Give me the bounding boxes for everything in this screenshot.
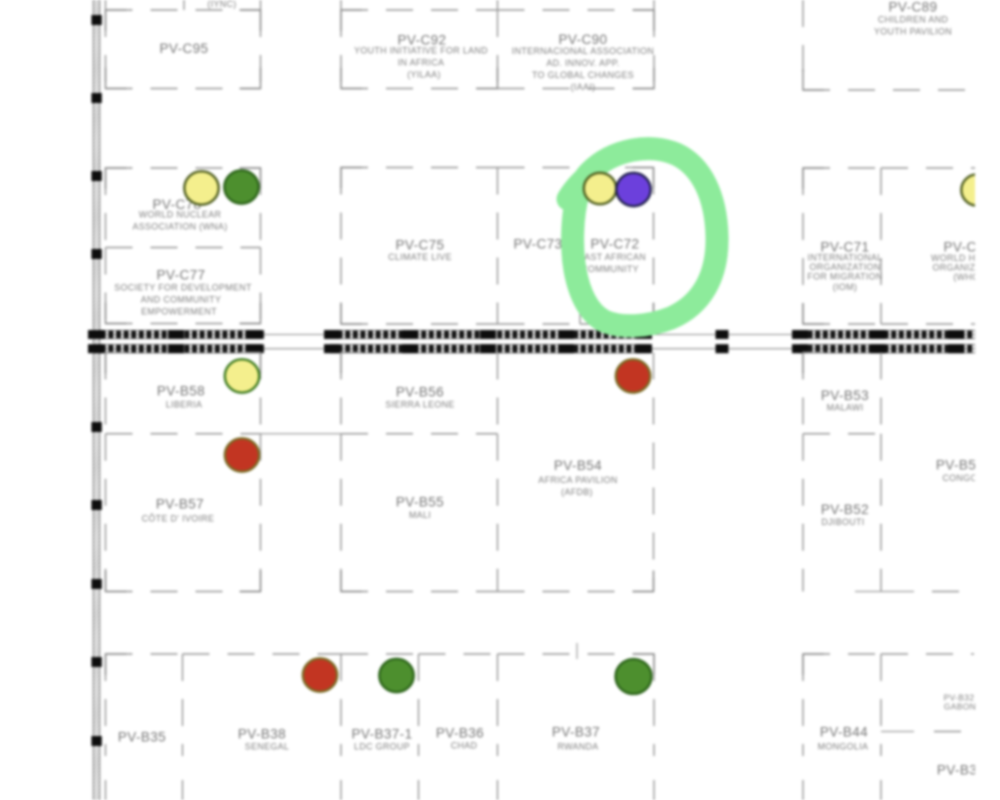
svg-text:YOUTH INITIATIVE FOR LAND: YOUTH INITIATIVE FOR LAND [354,46,488,56]
svg-text:PV-C75: PV-C75 [396,238,445,253]
svg-text:PV-C77: PV-C77 [157,268,206,283]
svg-text:COMMUNITY: COMMUNITY [581,264,639,274]
svg-text:PV-B37-1: PV-B37-1 [352,727,413,742]
svg-text:PV-B37: PV-B37 [552,725,600,740]
svg-text:ORGANIZATION: ORGANIZATION [809,262,880,272]
svg-text:YOUTH PAVILION: YOUTH PAVILION [874,27,952,37]
svg-text:FOR MIGRATION: FOR MIGRATION [807,272,882,282]
svg-text:PV-B56: PV-B56 [396,385,444,400]
svg-text:IN AFRICA: IN AFRICA [398,58,445,68]
svg-text:LDC GROUP: LDC GROUP [354,742,410,752]
svg-text:MALAWI: MALAWI [827,403,864,413]
svg-text:PV-B55: PV-B55 [396,495,444,510]
svg-text:MONGOLIA: MONGOLIA [818,742,869,752]
svg-text:TO GLOBAL CHANGES: TO GLOBAL CHANGES [532,70,634,80]
svg-text:PV-C90: PV-C90 [559,32,608,47]
svg-text:PV-C73: PV-C73 [514,237,563,252]
svg-text:WORLD NUCLEAR: WORLD NUCLEAR [139,210,221,220]
svg-text:PV-B54: PV-B54 [554,458,602,473]
svg-text:PV-B35: PV-B35 [118,730,166,745]
svg-text:PV-B58: PV-B58 [157,384,205,399]
svg-text:GABON: GABON [944,702,976,712]
svg-text:EMPOWERMENT: EMPOWERMENT [141,307,217,317]
svg-text:PV-C89: PV-C89 [889,0,938,15]
svg-text:CÔTE D' IVOIRE: CÔTE D' IVOIRE [142,514,215,524]
svg-text:AD. INNOV. APP.: AD. INNOV. APP. [546,58,619,68]
svg-text:ASSOCIATION (WNA): ASSOCIATION (WNA) [132,222,227,232]
svg-text:PV-C95: PV-C95 [160,41,209,56]
svg-text:(IYNC): (IYNC) [207,0,236,9]
svg-text:CONGO: CONGO [942,473,977,483]
svg-text:INTERNACIONAL ASSOCIATION: INTERNACIONAL ASSOCIATION [512,46,654,56]
svg-text:CHAD: CHAD [451,741,478,751]
svg-text:CLIMATE LIVE: CLIMATE LIVE [388,252,452,262]
svg-text:(AFDB): (AFDB) [561,487,593,497]
svg-text:PV-B38: PV-B38 [238,727,286,742]
svg-text:INTERNATIONAL: INTERNATIONAL [808,253,883,263]
svg-text:(YILAA): (YILAA) [407,70,441,80]
svg-text:RWANDA: RWANDA [557,742,598,752]
svg-text:CHILDREN AND: CHILDREN AND [878,15,948,25]
svg-text:AFRICA PAVILION: AFRICA PAVILION [538,475,617,485]
svg-text:MALI: MALI [409,510,431,520]
svg-text:PV-B52: PV-B52 [821,502,869,517]
svg-text:AND COMMUNITY: AND COMMUNITY [141,295,221,305]
svg-text:SIERRA LEONE: SIERRA LEONE [385,400,454,410]
svg-text:SENEGAL: SENEGAL [245,742,289,752]
svg-text:PV-B57: PV-B57 [156,497,204,512]
svg-text:PV-B44: PV-B44 [820,725,868,740]
svg-text:LIBERIA: LIBERIA [166,400,203,410]
svg-text:EAST AFRICAN: EAST AFRICAN [578,252,646,262]
svg-text:(IAAI): (IAAI) [571,82,596,92]
svg-text:DJIBOUTI: DJIBOUTI [821,517,864,527]
svg-text:SOCIETY FOR DEVELOPMENT: SOCIETY FOR DEVELOPMENT [114,283,252,293]
svg-text:(IOM): (IOM) [833,282,857,292]
svg-text:PV-B36: PV-B36 [436,726,484,741]
svg-text:PV-B53: PV-B53 [821,388,869,403]
svg-text:PV-C72: PV-C72 [591,237,640,252]
